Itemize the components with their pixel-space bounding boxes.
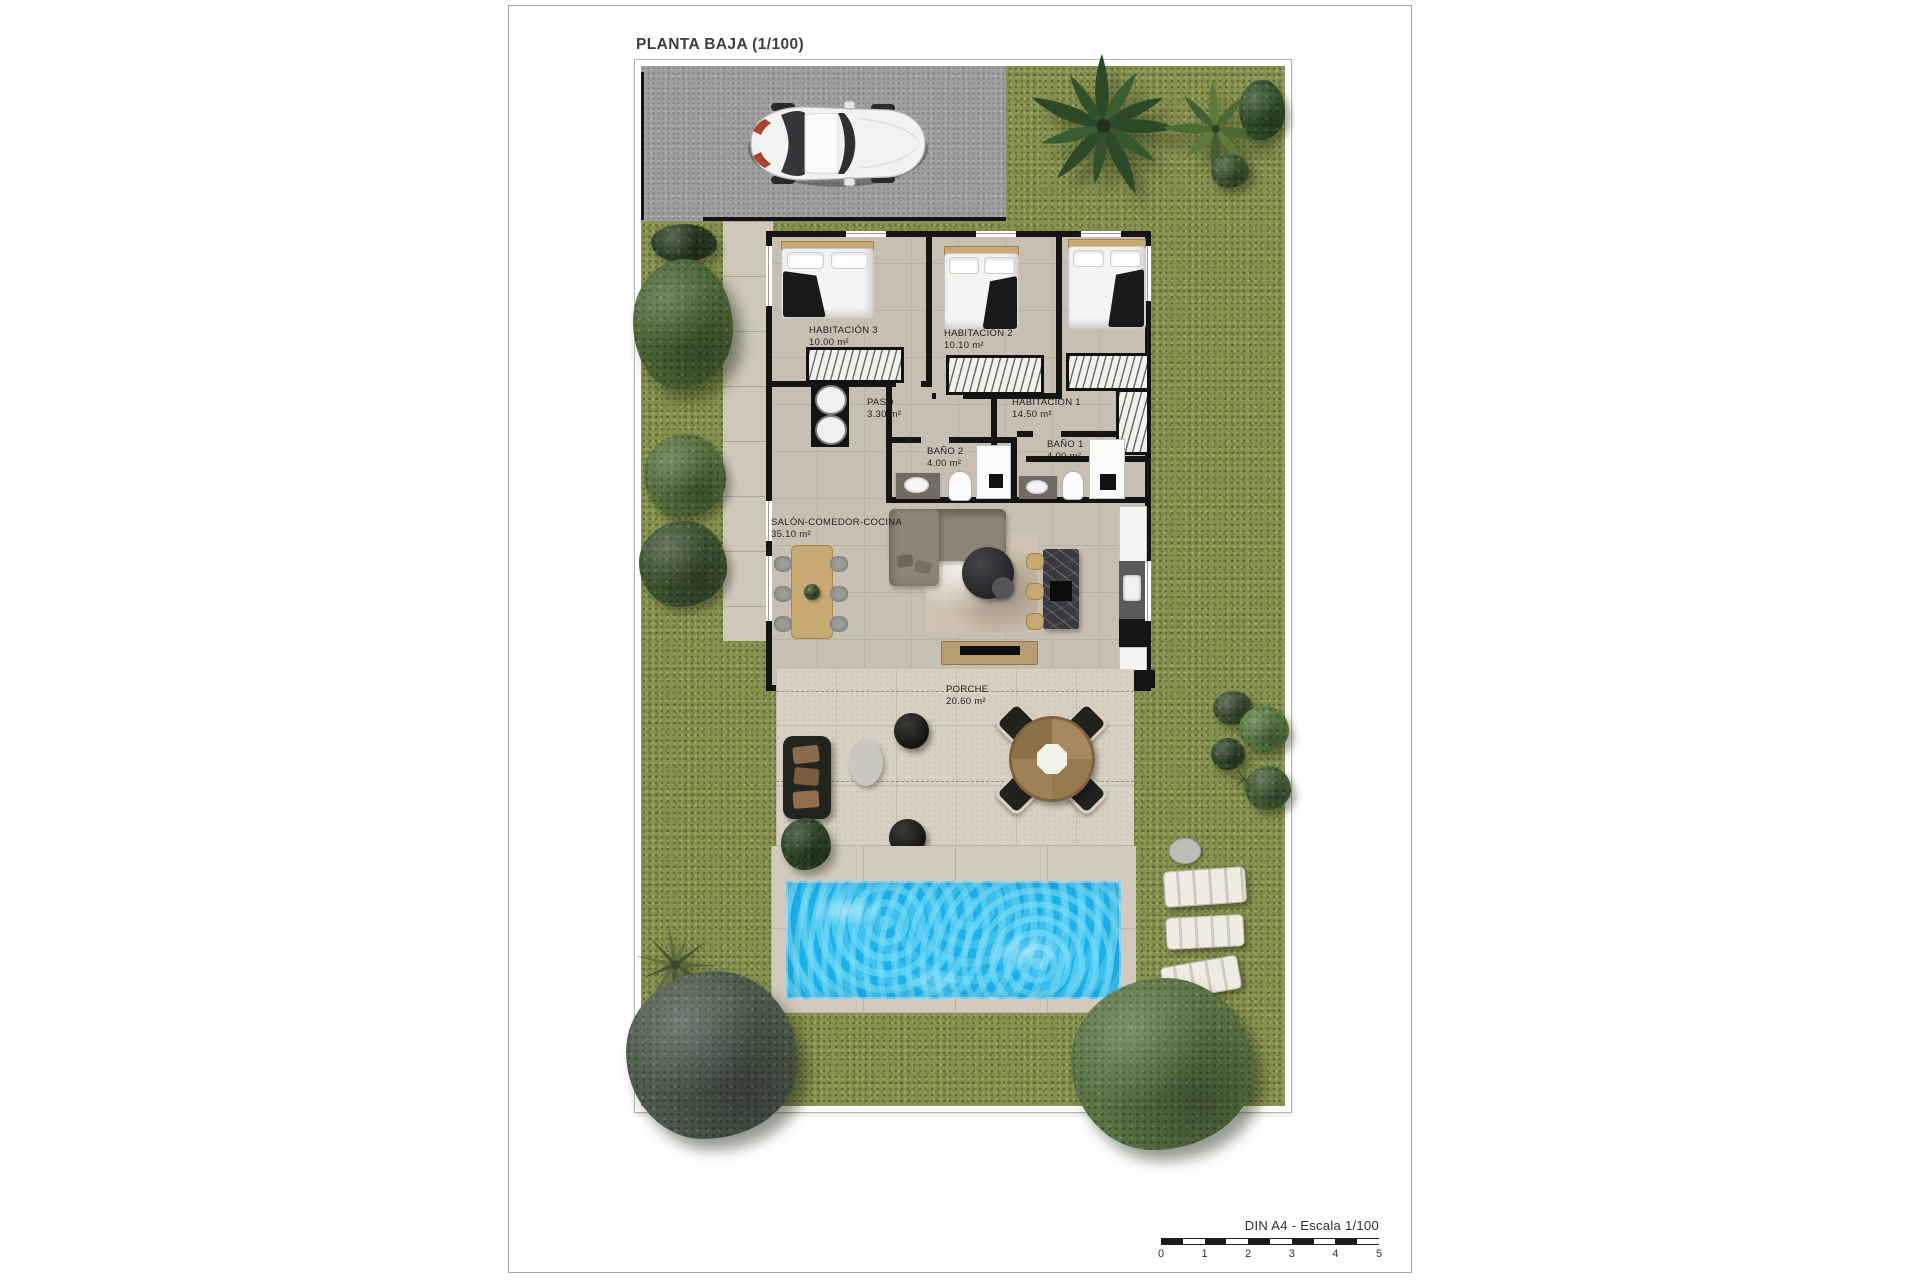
scale-tick: 4 xyxy=(1332,1248,1338,1260)
scale-segment xyxy=(1226,1239,1248,1244)
bathroom-sink xyxy=(1019,476,1057,499)
window xyxy=(846,231,886,237)
bush-icon xyxy=(781,818,831,870)
room-name: HABITACIÓN 3 xyxy=(809,325,878,337)
scale-segment xyxy=(1357,1239,1379,1244)
garden: HABITACIÓN 3 10.00 m² HABITACIÓN 2 10.10… xyxy=(641,66,1285,1106)
grass-tuft-icon xyxy=(1224,760,1264,798)
dining-table xyxy=(791,545,833,639)
cushion xyxy=(914,560,932,575)
wall xyxy=(1011,437,1017,503)
shower-column xyxy=(1100,474,1116,490)
window xyxy=(1145,561,1151,621)
kitchen-counter xyxy=(1119,561,1145,619)
driveway-wall xyxy=(641,72,644,220)
tv-console xyxy=(941,641,1038,665)
scale-label: DIN A4 - Escala 1/100 xyxy=(1245,1218,1379,1233)
outdoor-sofa xyxy=(783,736,831,819)
window xyxy=(766,246,772,306)
dining-chair xyxy=(830,586,848,602)
car-top-view xyxy=(741,99,931,188)
bar-stool xyxy=(1026,553,1044,570)
wall xyxy=(932,393,936,399)
shower-column xyxy=(989,474,1003,488)
room-label-salon: SALÓN-COMEDOR-COCINA 35.10 m² xyxy=(771,517,902,542)
tv-icon xyxy=(960,646,1020,655)
double-bed xyxy=(781,241,874,319)
pouf xyxy=(894,713,929,749)
bush-icon xyxy=(1211,154,1249,188)
swimming-pool xyxy=(786,881,1121,999)
wardrobe xyxy=(1066,353,1150,391)
toilet xyxy=(1062,471,1084,500)
wall xyxy=(926,231,932,386)
wall xyxy=(921,381,932,387)
bush-icon xyxy=(1239,706,1289,752)
plant-icon xyxy=(804,584,820,600)
dining-chair xyxy=(774,556,792,572)
scale-segment xyxy=(1183,1239,1205,1244)
bathroom-sink xyxy=(896,473,940,499)
dryer-icon xyxy=(815,415,847,445)
pillow xyxy=(984,257,1015,274)
page-title: PLANTA BAJA (1/100) xyxy=(636,36,804,54)
room-area: 20.60 m² xyxy=(946,696,988,708)
room-area: 10.00 m² xyxy=(809,337,878,349)
shower xyxy=(1089,439,1125,499)
room-label-hab2: HABITACIÓN 2 10.10 m² xyxy=(944,328,1013,353)
dining-chair xyxy=(774,616,792,632)
scale-segment xyxy=(1335,1239,1357,1244)
dining-chair xyxy=(774,586,792,602)
room-label-bano2: BAÑO 2 4.00 m² xyxy=(927,446,964,471)
room-area: 4.00 m² xyxy=(1047,451,1084,463)
window xyxy=(1081,231,1121,237)
room-area: 3.30 m² xyxy=(867,409,901,421)
double-bed xyxy=(1068,239,1146,329)
wall xyxy=(1017,431,1033,437)
sun-lounger xyxy=(1163,866,1247,908)
double-bed xyxy=(944,246,1019,331)
laundry-closet xyxy=(811,379,849,447)
scale-segment xyxy=(1161,1239,1183,1244)
scale-tick: 5 xyxy=(1376,1248,1382,1260)
stone-pouf xyxy=(849,739,883,786)
pillow xyxy=(831,252,868,269)
wall xyxy=(1056,231,1062,399)
kitchen-sink xyxy=(1123,575,1141,601)
shower xyxy=(976,445,1011,499)
scale-tick: 3 xyxy=(1289,1248,1295,1260)
bush-icon xyxy=(1239,80,1285,140)
pillow xyxy=(1073,250,1105,267)
porch-pillar xyxy=(1133,670,1155,688)
room-area: 35.10 m² xyxy=(771,529,902,541)
toilet xyxy=(948,471,972,501)
dining-chair xyxy=(830,556,848,572)
cushion xyxy=(792,744,820,764)
outdoor-table xyxy=(1009,716,1095,802)
scale-segment xyxy=(1314,1239,1336,1244)
pillow xyxy=(787,252,824,269)
cushion xyxy=(792,790,819,809)
pillow xyxy=(1110,250,1142,267)
wardrobe xyxy=(946,355,1044,395)
room-name: SALÓN-COMEDOR-COCINA xyxy=(771,517,902,529)
scale-tick: 2 xyxy=(1245,1248,1251,1260)
room-label-paso: PASO 3.30 m² xyxy=(867,397,901,422)
pillow xyxy=(949,257,980,274)
cushion xyxy=(896,554,914,568)
scale-tick: 0 xyxy=(1158,1248,1164,1260)
scale-segment xyxy=(1292,1239,1314,1244)
room-label-porche: PORCHE 20.60 m² xyxy=(946,684,988,709)
room-label-bano1: BAÑO 1 4.00 m² xyxy=(1047,439,1084,464)
room-area: 14.50 m² xyxy=(1012,409,1081,421)
scale-bar xyxy=(1161,1238,1379,1245)
window xyxy=(976,231,1016,237)
kitchen-cabinet xyxy=(1119,506,1147,563)
scale-tick: 1 xyxy=(1202,1248,1208,1260)
tree-icon xyxy=(626,971,798,1139)
kitchen-island xyxy=(1043,549,1079,629)
side-table xyxy=(992,577,1014,599)
tree-icon xyxy=(633,259,733,389)
scale-segment xyxy=(1270,1239,1292,1244)
wall xyxy=(949,437,1011,443)
room-name: PASO xyxy=(867,397,901,409)
bar-stool xyxy=(1026,613,1044,630)
bush-icon xyxy=(651,224,717,262)
plan-frame: HABITACIÓN 3 10.00 m² HABITACIÓN 2 10.10… xyxy=(634,59,1292,1113)
bush-icon xyxy=(644,434,726,518)
wall xyxy=(892,437,921,443)
washer-icon xyxy=(815,385,847,415)
window xyxy=(766,556,772,621)
stepping-stone xyxy=(1169,838,1201,864)
room-area: 4.00 m² xyxy=(927,458,964,470)
room-label-hab3: HABITACIÓN 3 10.00 m² xyxy=(809,325,878,350)
room-name: HABITACIÓN 1 xyxy=(1012,397,1081,409)
dining-chair xyxy=(830,616,848,632)
room-label-hab1: HABITACIÓN 1 14.50 m² xyxy=(1012,397,1081,422)
room-name: BAÑO 2 xyxy=(927,446,964,458)
scale-segment xyxy=(1248,1239,1270,1244)
bush-icon xyxy=(639,521,727,607)
bar-stool xyxy=(1026,583,1044,600)
sun-lounger xyxy=(1165,914,1245,950)
cooktop-icon xyxy=(1050,581,1072,601)
scale-segment xyxy=(1205,1239,1227,1244)
tree-icon xyxy=(1071,978,1253,1150)
umbrella-base xyxy=(1037,744,1067,774)
wardrobe xyxy=(806,347,904,383)
oven-icon xyxy=(1119,619,1145,647)
plan-sheet: PLANTA BAJA (1/100) xyxy=(508,5,1412,1273)
room-area: 10.10 m² xyxy=(944,340,1013,352)
cushion xyxy=(793,767,819,786)
room-name: PORCHE xyxy=(946,684,988,696)
room-name: HABITACIÓN 2 xyxy=(944,328,1013,340)
room-name: BAÑO 1 xyxy=(1047,439,1084,451)
